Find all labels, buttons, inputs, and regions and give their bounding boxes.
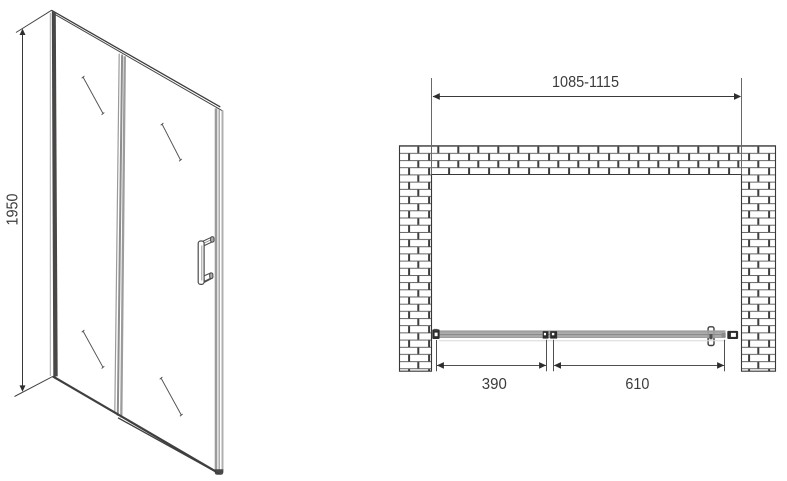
svg-text:1085-1115: 1085-1115 — [552, 74, 619, 91]
svg-text:390: 390 — [482, 376, 507, 393]
svg-text:1950: 1950 — [5, 193, 22, 225]
svg-text:610: 610 — [625, 376, 649, 393]
